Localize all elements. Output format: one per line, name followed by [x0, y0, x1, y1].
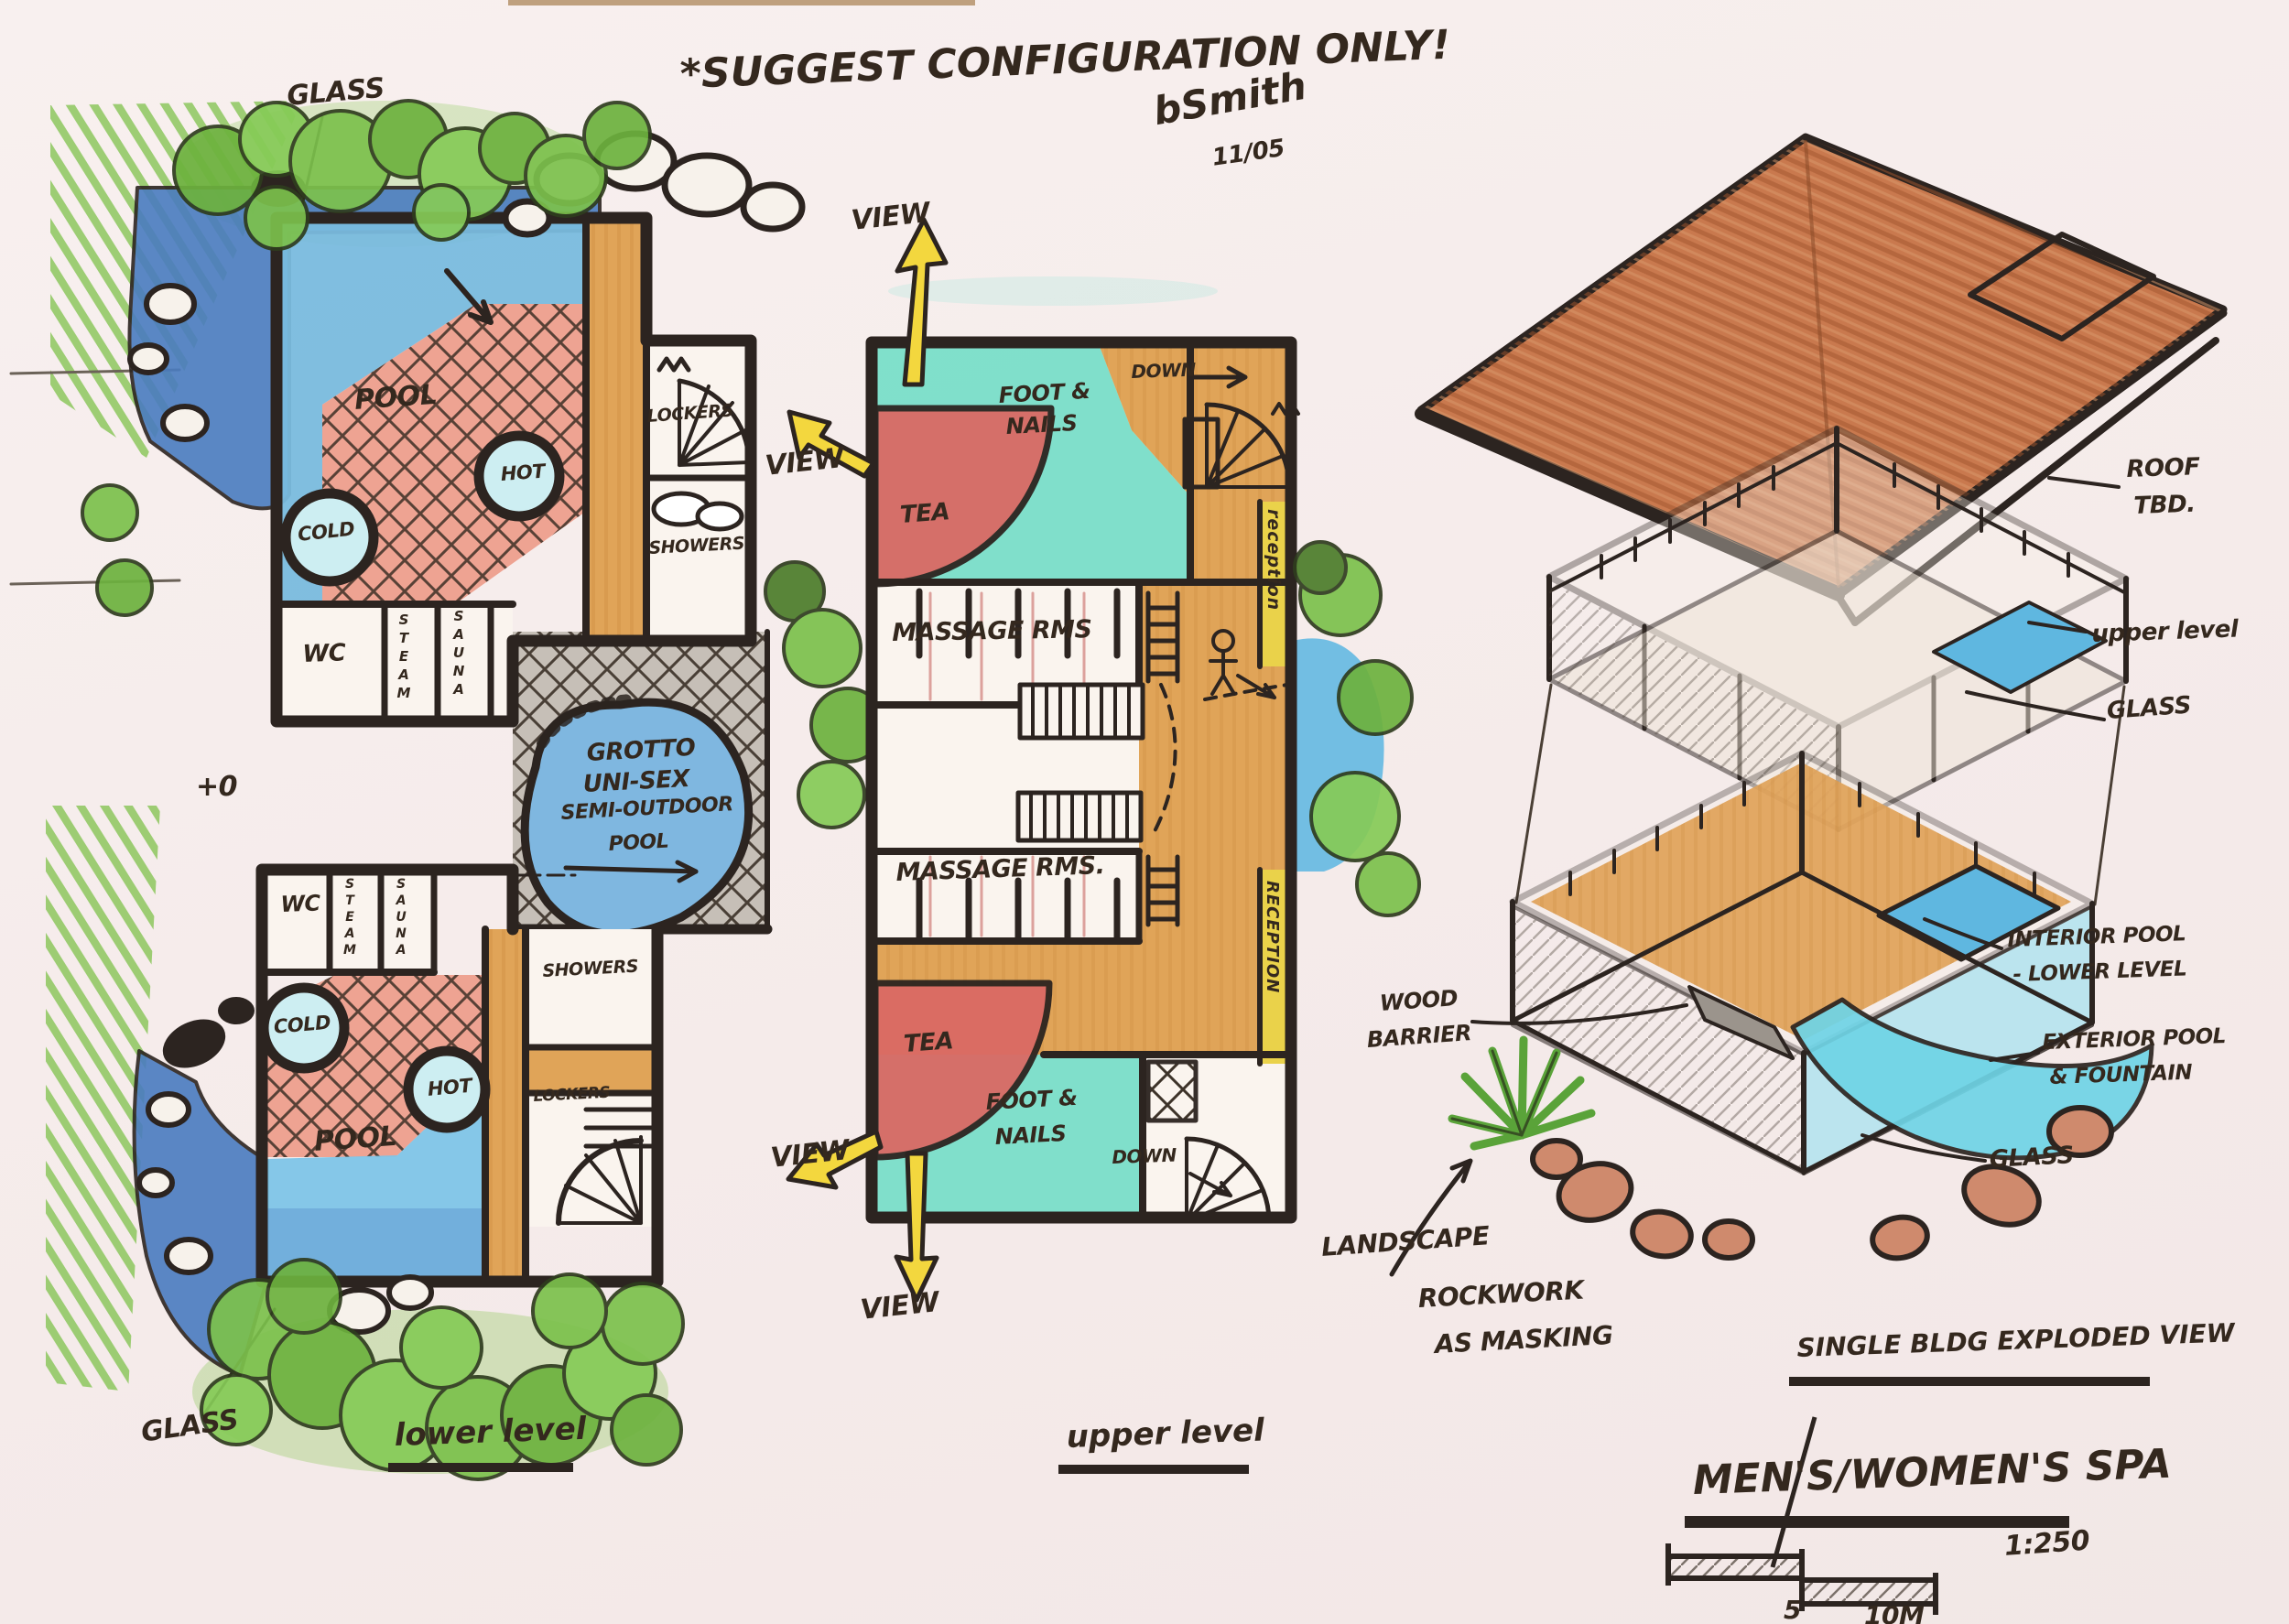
stair-label-down: DOWN [1131, 359, 1196, 383]
scale-label: 1:250 [2003, 1525, 2090, 1563]
callout-roof-1: ROOF [2126, 453, 2200, 483]
callout-upper-level: upper level [2091, 615, 2239, 648]
room-label-sauna: SAUNA [450, 608, 467, 699]
scale-tick-10m: 10M [1864, 1600, 1924, 1624]
room-label-foot-nails: NAILS [1005, 410, 1078, 439]
room-label-reception: RECEPTION [1263, 881, 1282, 993]
scale-tick-5: 5 [1784, 1595, 1801, 1624]
spa-sketch-page: *SUGGEST CONFIGURATION ONLY! bSmith 11/0… [0, 0, 2289, 1624]
grotto-label-4: POOL [608, 830, 669, 856]
datum-label: +0 [196, 771, 237, 803]
room-label-sauna: SAUNA [394, 877, 408, 959]
callout-glass: GLASS [2106, 692, 2192, 725]
room-label-tea: TEA [903, 1027, 954, 1058]
room-label-wc: WC [302, 639, 346, 668]
room-label-tea: TEA [899, 498, 950, 529]
room-label-steam: STEAM [342, 877, 357, 959]
axon-view [1392, 137, 2223, 1274]
room-label-steam: STEAM [396, 612, 412, 703]
plunge-label-hot: HOT [427, 1075, 472, 1100]
stair-label-down: DOWN [1112, 1144, 1177, 1168]
room-label-foot-nails: FOOT & [998, 378, 1090, 408]
plunge-label-hot: HOT [500, 460, 546, 485]
sketch-drawing [0, 0, 2289, 1624]
room-label-foot-nails: FOOT & [985, 1085, 1078, 1115]
left-plan [11, 101, 884, 1479]
callout-wood-barrier-1: WOOD [1379, 985, 1459, 1016]
room-label-massage: MASSAGE RMS [892, 615, 1092, 647]
room-label-pool: POOL [313, 1121, 397, 1158]
callout-roof-2: TBD. [2133, 491, 2196, 520]
room-label-wc: WC [280, 890, 320, 916]
grotto-label-2: UNI-SEX [582, 765, 690, 798]
room-label-reception: reception [1264, 509, 1284, 611]
grotto-label-1: GROTTO [586, 734, 696, 767]
plan-title-upper-level: upper level [1066, 1412, 1264, 1456]
callout-exterior-pool-2: & FOUNTAIN [2049, 1061, 2193, 1089]
callout-glass: GLASS [1989, 1142, 2075, 1174]
upper-plan [788, 220, 1419, 1474]
room-label-foot-nails: NAILS [994, 1121, 1067, 1150]
room-label-pool: POOL [353, 379, 438, 417]
plan-title-lower-level: lower level [394, 1411, 587, 1454]
